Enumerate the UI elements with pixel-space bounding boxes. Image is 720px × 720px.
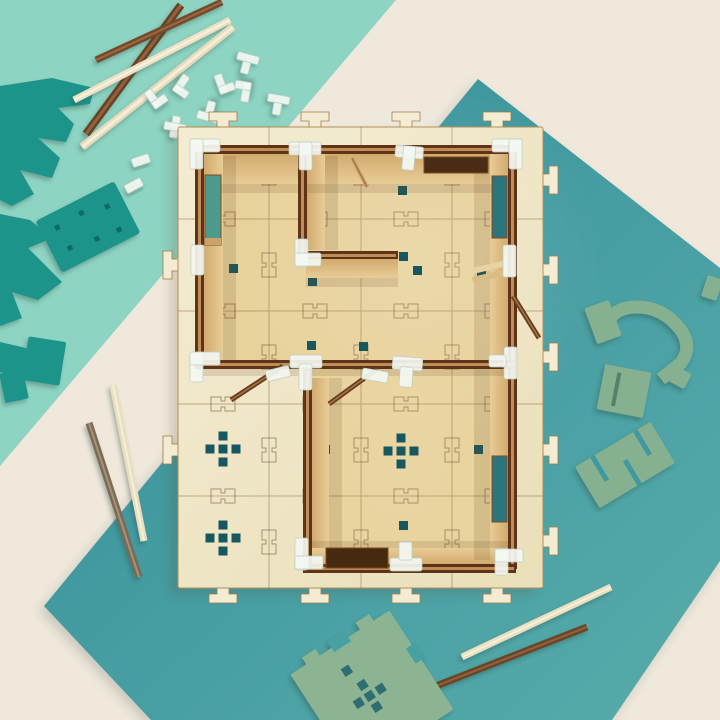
- wall-bar-stripe: [306, 371, 309, 566]
- clip-arm: [190, 139, 203, 169]
- peg-hole: [410, 447, 419, 456]
- model-house: [163, 75, 610, 603]
- window-opening: [492, 176, 507, 238]
- peg-hole: [219, 445, 228, 454]
- wall-face: [312, 378, 329, 564]
- wall-shadow: [325, 156, 338, 250]
- wall-shadow: [306, 278, 398, 287]
- clip-arm: [489, 355, 506, 367]
- clip-arm: [399, 542, 412, 560]
- wall-shadow: [329, 378, 342, 564]
- wall-shadow: [196, 369, 516, 376]
- wall-bar-stripe: [198, 148, 514, 151]
- clip-arm: [299, 142, 312, 170]
- clip-arm: [503, 245, 516, 277]
- window-opening: [424, 157, 488, 173]
- clip-arm: [295, 556, 323, 569]
- corner-clip: [191, 245, 204, 275]
- peg-hole: [206, 534, 215, 543]
- peg-hole: [397, 460, 406, 469]
- door-opening: [326, 548, 388, 568]
- peg-hole: [206, 445, 215, 454]
- clip-arm: [402, 146, 416, 171]
- clip-arm: [191, 245, 204, 275]
- peg-hole: [399, 521, 408, 530]
- photo-canvas: [0, 0, 720, 720]
- peg-hole: [219, 458, 228, 467]
- teal-square-piece: [22, 336, 66, 385]
- window-opening: [492, 456, 507, 522]
- clip-arm: [399, 367, 413, 388]
- window-opening: [205, 175, 221, 245]
- wall-shadow: [205, 184, 507, 193]
- peg-hole: [232, 534, 241, 543]
- peg-hole: [397, 447, 406, 456]
- clip-arm: [190, 352, 220, 365]
- peg-hole: [219, 547, 228, 556]
- peg-hole: [232, 445, 241, 454]
- peg-hole: [413, 266, 422, 275]
- clip-arm: [299, 364, 312, 390]
- peg-hole: [219, 534, 228, 543]
- corner-clip: [503, 245, 516, 277]
- window-sill: [205, 238, 221, 245]
- sage-hinge-square: [597, 364, 652, 418]
- peg-hole: [219, 432, 228, 441]
- peg-hole: [399, 252, 408, 261]
- peg-hole: [397, 434, 406, 443]
- clip-arm: [509, 139, 522, 169]
- peg-hole: [384, 447, 393, 456]
- peg-hole: [219, 521, 228, 530]
- peg-hole: [307, 341, 316, 350]
- clip-segment: [272, 102, 282, 115]
- clip-arm: [295, 253, 321, 266]
- wall-bar-stripe: [198, 363, 514, 366]
- flatlay-photo: [0, 0, 720, 720]
- peg-hole: [359, 342, 368, 351]
- clip-arm: [495, 549, 523, 562]
- wall-shadow: [223, 156, 236, 362]
- wall-shadow: [474, 156, 490, 560]
- sage-hinge-square-body: [597, 364, 652, 418]
